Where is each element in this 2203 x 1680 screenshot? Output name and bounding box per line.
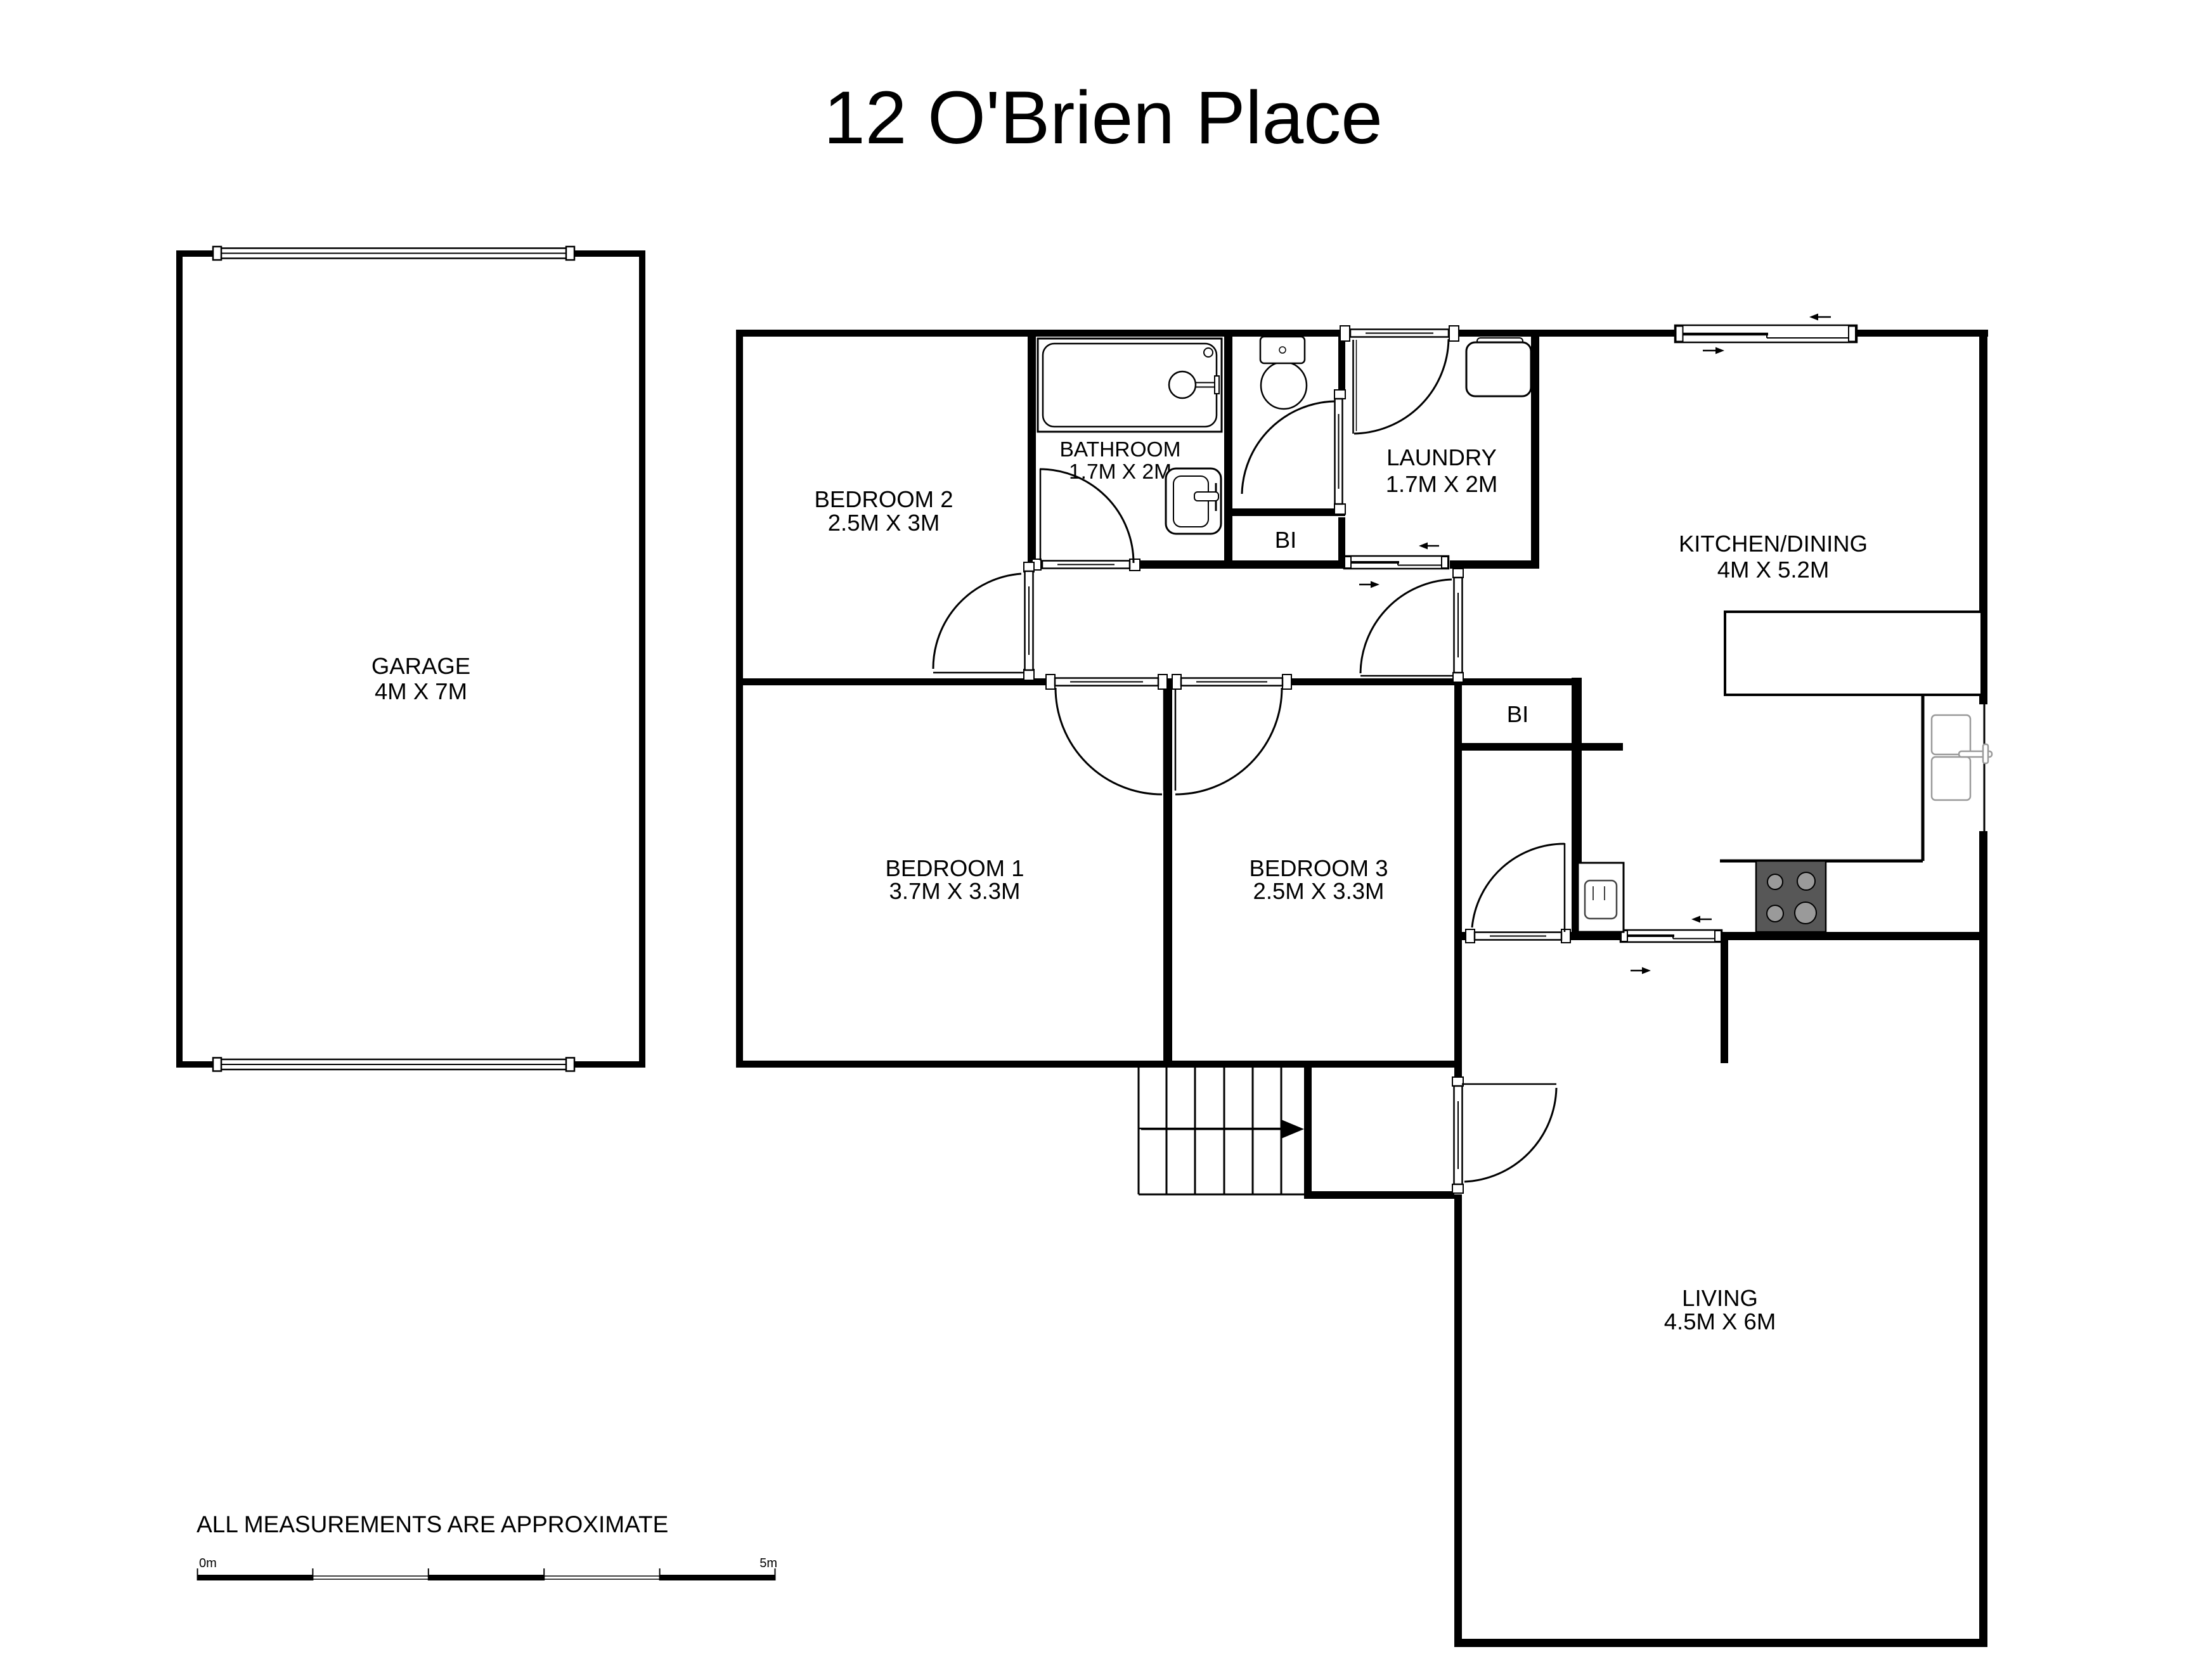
svg-text:1.7M X 2M: 1.7M X 2M bbox=[1386, 471, 1497, 497]
svg-text:GARAGE: GARAGE bbox=[371, 653, 470, 679]
svg-text:0m: 0m bbox=[199, 1556, 217, 1570]
svg-text:BI: BI bbox=[1275, 527, 1297, 553]
svg-text:2.5M X 3M: 2.5M X 3M bbox=[828, 510, 940, 536]
svg-text:ALL MEASUREMENTS ARE APPROXIMA: ALL MEASUREMENTS ARE APPROXIMATE bbox=[197, 1511, 668, 1537]
svg-text:LIVING: LIVING bbox=[1682, 1285, 1758, 1311]
svg-text:BI: BI bbox=[1507, 701, 1529, 727]
svg-text:4M X 7M: 4M X 7M bbox=[375, 678, 467, 704]
svg-text:BEDROOM 1: BEDROOM 1 bbox=[885, 855, 1024, 881]
svg-text:4.5M X 6M: 4.5M X 6M bbox=[1664, 1308, 1776, 1334]
svg-text:12 O'Brien Place: 12 O'Brien Place bbox=[824, 76, 1383, 160]
svg-text:KITCHEN/DINING: KITCHEN/DINING bbox=[1679, 531, 1868, 557]
svg-text:LAUNDRY: LAUNDRY bbox=[1386, 444, 1497, 470]
svg-text:4M X 5.2M: 4M X 5.2M bbox=[1717, 557, 1829, 583]
svg-text:BEDROOM 3: BEDROOM 3 bbox=[1249, 855, 1388, 881]
svg-text:BATHROOM: BATHROOM bbox=[1059, 438, 1180, 462]
svg-text:5m: 5m bbox=[759, 1556, 777, 1570]
svg-text:BEDROOM 2: BEDROOM 2 bbox=[814, 486, 953, 512]
svg-text:3.7M X 3.3M: 3.7M X 3.3M bbox=[889, 878, 1021, 904]
svg-text:2.5M X 3.3M: 2.5M X 3.3M bbox=[1253, 878, 1385, 904]
